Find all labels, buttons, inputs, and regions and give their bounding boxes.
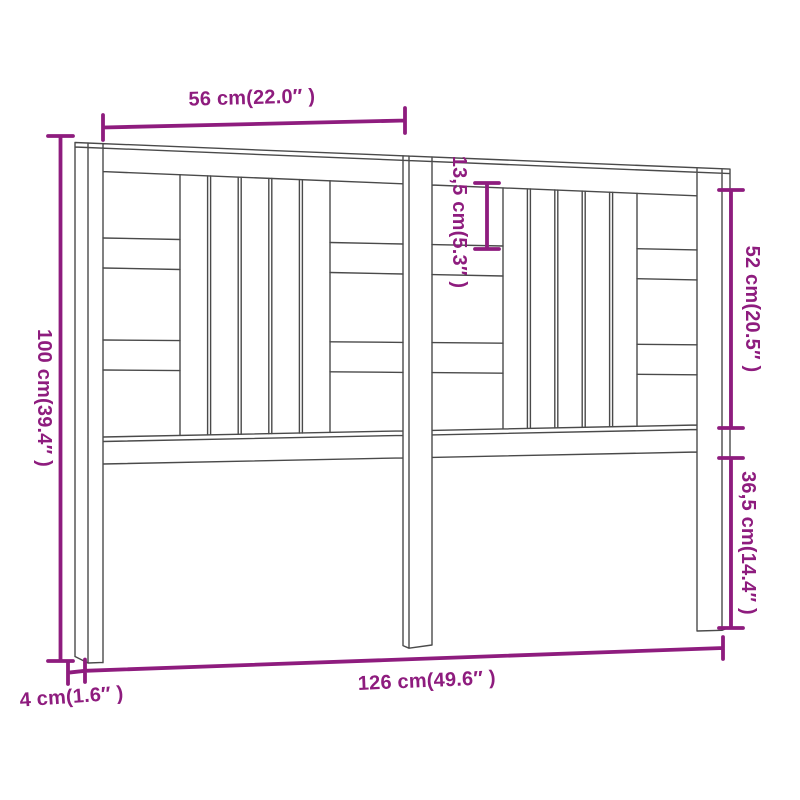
dim-bottom-width-label: 126 cm(49.6″ ): [357, 667, 496, 695]
dim-total-height-label: 100 cm(39.4″ ): [33, 329, 55, 467]
diagram-canvas: 56 cm(22.0″ ) 100 cm(39.4″ ) 13,5 cm(5.3…: [0, 0, 800, 800]
dimension-lines: [48, 108, 743, 684]
dim-leg-below-label: 36,5 cm(14.4″ ): [737, 471, 759, 615]
horizontal-slats: [103, 238, 697, 375]
dim-upper-section-label: 52 cm(20.5″ ): [741, 246, 763, 373]
dim-slat-gap-line: [475, 183, 499, 249]
dim-thickness-label: 4 cm(1.6″ ): [19, 682, 124, 711]
dimension-labels: 56 cm(22.0″ ) 100 cm(39.4″ ) 13,5 cm(5.3…: [19, 85, 763, 711]
dim-top-width-label: 56 cm(22.0″ ): [188, 85, 315, 110]
dim-slat-gap-label: 13,5 cm(5.3″ ): [448, 156, 470, 288]
headboard-drawing: [75, 143, 730, 664]
headboard-dimension-diagram: 56 cm(22.0″ ) 100 cm(39.4″ ) 13,5 cm(5.3…: [0, 0, 800, 800]
dim-top-width-line: [103, 108, 405, 140]
headboard-frame: [75, 143, 730, 664]
